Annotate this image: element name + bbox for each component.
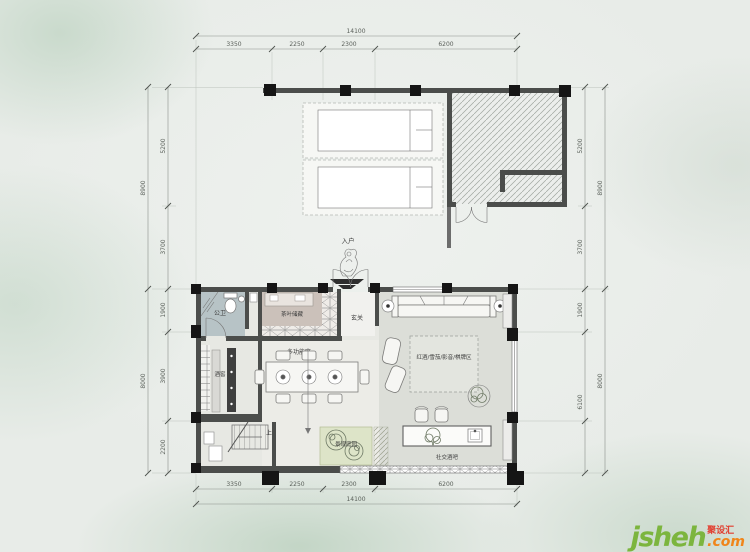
- table-burners: [276, 370, 342, 384]
- entry-step: [330, 279, 364, 284]
- dim-bottom-seg: 6200: [438, 481, 453, 488]
- dim-left-outer: 8000: [140, 373, 147, 388]
- equipment: [204, 432, 214, 444]
- niche-fixture: [250, 293, 257, 302]
- watermark-name: jsheh: [631, 524, 706, 551]
- dim-top-seg: 2250: [289, 41, 304, 48]
- floor-plan-drawing: 14100 3350 2250 2300 6200 3350 2250 2300…: [0, 0, 750, 552]
- dim-right-inner: 6100: [577, 394, 584, 409]
- entry-label: 入户: [342, 236, 355, 245]
- hatched-room-door: [456, 207, 487, 223]
- top-window: [393, 287, 443, 292]
- tasting-counter: [227, 348, 236, 412]
- entry-step: [338, 285, 356, 289]
- stairs-up-label: 上: [266, 429, 272, 437]
- dim-bottom-seg: 2300: [341, 481, 356, 488]
- upper-structure: [263, 84, 571, 248]
- cabinet-column: [322, 292, 337, 336]
- dim-right-inner: 5200: [577, 138, 584, 153]
- bathroom-label: 公卫: [214, 310, 226, 317]
- watermark-logo[interactable]: jsheh 聚设汇 .com: [631, 524, 745, 551]
- floor-plan-canvas: 14100 3350 2250 2300 6200 3350 2250 2300…: [0, 0, 750, 552]
- skylight-bays: [303, 103, 443, 215]
- watermark-tld: .com: [707, 535, 745, 549]
- dim-top-seg: 6200: [438, 41, 453, 48]
- dim-top-total: 14100: [346, 28, 365, 35]
- statue-sketch: [340, 249, 357, 276]
- rug: [410, 336, 478, 392]
- hatched-room-hatch: [452, 93, 562, 204]
- sub-room-wall: [500, 170, 567, 175]
- right-window: [512, 340, 517, 412]
- dim-left-inner: 3900: [160, 368, 167, 383]
- dim-right-outer: 8000: [597, 373, 604, 388]
- dim-left-outer: 8900: [140, 180, 147, 195]
- equipment: [209, 446, 222, 461]
- entry-door: [333, 270, 368, 288]
- bar-sink-icon: [468, 429, 482, 442]
- dim-left-inner: 1900: [160, 302, 167, 317]
- shelf: [212, 350, 220, 412]
- foyer-floor: [341, 292, 375, 336]
- bar-label: 社交酒吧: [436, 453, 459, 461]
- wall-cabinet: [503, 420, 512, 460]
- dim-right-inner: 3700: [577, 239, 584, 254]
- wine-rack: [201, 345, 210, 411]
- sofa: [382, 296, 506, 317]
- dim-bottom-total: 14100: [346, 496, 365, 503]
- left-wall: [196, 287, 201, 473]
- dim-left-inner: 5200: [160, 138, 167, 153]
- foyer-label: 玄关: [351, 314, 363, 322]
- main-block: 公卫 茶叶储藏 玄关 多功能区: [191, 270, 524, 486]
- dim-right-inner: 1900: [577, 302, 584, 317]
- garden: 景观庭园: [320, 427, 388, 465]
- garden-label: 景观庭园: [335, 440, 358, 448]
- wall-cabinet: [503, 294, 512, 328]
- wine-cellar: 酒窖: [201, 345, 236, 412]
- gravel-strip: [374, 427, 388, 465]
- wine-cellar-label: 酒窖: [214, 370, 226, 378]
- tea-storage-label: 茶叶储藏: [281, 310, 304, 318]
- entry-porch: 入户: [330, 236, 364, 289]
- lounge-label: 红酒/雪茄/影音/棋牌区: [416, 353, 472, 361]
- main-top-wall: [196, 287, 333, 292]
- dim-bottom-seg: 3350: [226, 481, 241, 488]
- bottom-window: [340, 466, 510, 473]
- wall-stub: [447, 207, 451, 248]
- cabinet-row: [262, 326, 322, 336]
- dim-bottom-seg: 2250: [289, 481, 304, 488]
- dim-top-seg: 2300: [341, 41, 356, 48]
- dim-top-seg: 3350: [226, 41, 241, 48]
- dim-left-inner: 3700: [160, 239, 167, 254]
- sink-icon: [239, 296, 245, 302]
- dim-left-inner: 2200: [160, 439, 167, 454]
- dim-right-outer: 8900: [597, 180, 604, 195]
